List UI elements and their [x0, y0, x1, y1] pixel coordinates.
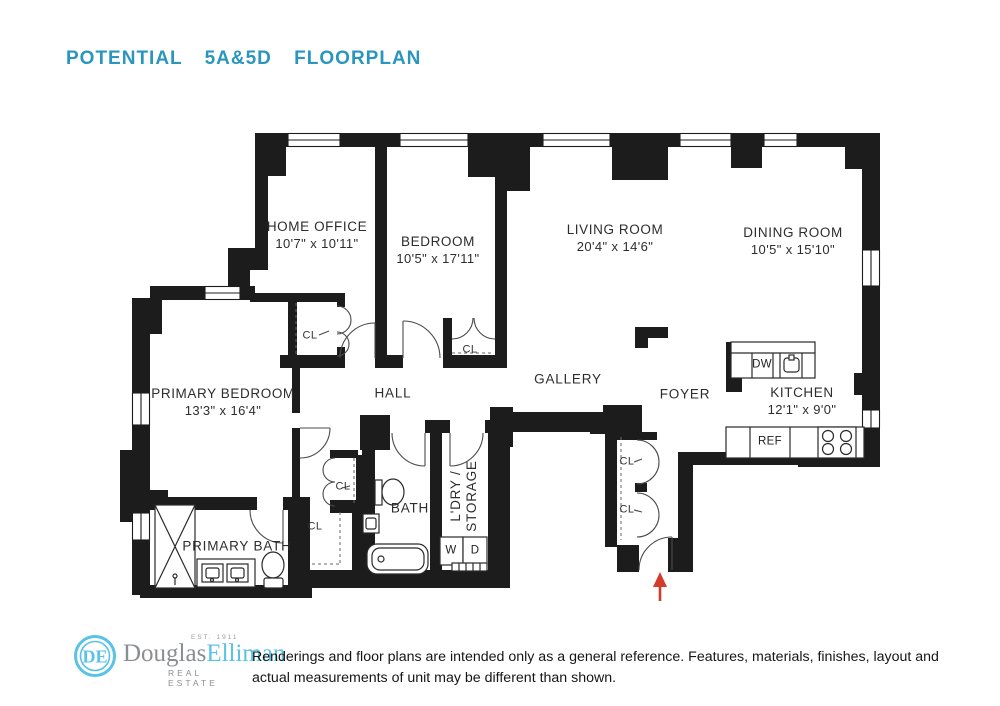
refrigerator-label: REF: [758, 434, 782, 451]
room-label-kitchen: KITCHEN 12'1" x 9'0": [768, 384, 837, 418]
closet-label: CL: [619, 502, 634, 519]
area-label-bath: BATH: [391, 500, 429, 517]
floorplan: HOME OFFICE 10'7" x 10'11" BEDROOM 10'5"…: [0, 0, 1000, 706]
dryer-label: D: [471, 543, 480, 560]
entry-arrow: [653, 572, 667, 601]
closet-label: CL: [619, 454, 634, 471]
room-label-bedroom: BEDROOM 10'5" x 17'11": [396, 233, 479, 267]
floorplan-drawing: [0, 0, 1000, 706]
douglas-elliman-logo: DE DouglasElliman EST. 1911 REAL ESTATE: [73, 634, 243, 678]
area-label-gallery: GALLERY: [534, 371, 602, 388]
closet-label: CL: [302, 328, 317, 345]
logo-tagline: REAL ESTATE: [168, 668, 243, 688]
floorplan-page: POTENTIAL 5A&5D FLOORPLAN: [0, 0, 1000, 706]
closet-label: CL: [335, 479, 350, 496]
room-label-living-room: LIVING ROOM 20'4" x 14'6": [567, 221, 664, 255]
disclaimer-text: Renderings and floor plans are intended …: [252, 647, 954, 689]
room-label-home-office: HOME OFFICE 10'7" x 10'11": [267, 218, 367, 252]
svg-text:DE: DE: [82, 647, 107, 667]
room-label-dining-room: DINING ROOM 10'5" x 15'10": [743, 224, 843, 258]
logo-est-text: EST. 1911: [191, 634, 239, 641]
closet-label: CL: [462, 342, 477, 359]
area-label-foyer: FOYER: [660, 386, 711, 403]
de-monogram-icon: DE: [73, 634, 117, 678]
washer-label: W: [445, 543, 456, 560]
closet-label: CL: [307, 519, 322, 536]
area-label-hall: HALL: [375, 385, 412, 402]
area-label-primary-bath: PRIMARY BATH: [182, 538, 291, 555]
room-label-primary-bedroom: PRIMARY BEDROOM 13'3" x 16'4": [151, 385, 295, 419]
dishwasher-label: DW: [752, 357, 772, 374]
area-label-laundry-storage: L'DRY / STORAGE: [448, 460, 480, 531]
